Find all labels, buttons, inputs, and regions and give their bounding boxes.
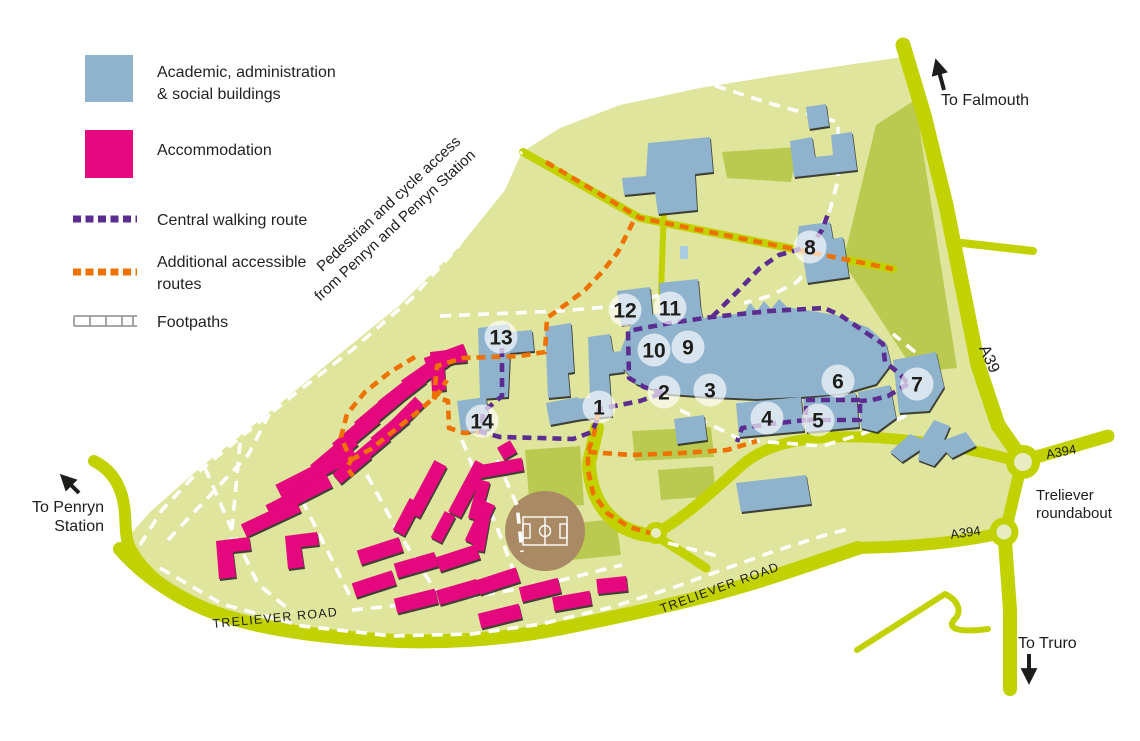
label-to-truro: To Truro [1018,635,1077,652]
pond [680,246,688,259]
map-marker-label-3: 3 [704,380,716,403]
map-marker-label-14: 14 [470,411,494,434]
legend-academic-swatch [85,55,133,102]
legend-accommodation-swatch [85,130,133,178]
campus-mini-roundabout [648,525,664,541]
to-falmouth-arrow-icon [937,64,944,90]
to-penryn-arrow-icon [64,478,79,493]
svg-text:Pedestrian and cycle access: Pedestrian and cycle access [313,133,464,275]
map-marker-label-5: 5 [812,410,824,433]
legend-central-route-label: Central walking route [157,212,307,229]
label-treliever-roundabout-1: Treliever [1036,487,1094,504]
south-roundabout [993,521,1015,543]
map-marker-label-6: 6 [832,371,844,394]
legend-academic-label-2: & social buildings [157,86,281,103]
map-marker-label-1: 1 [593,397,605,420]
map-marker-label-9: 9 [682,337,694,360]
map-marker-label-2: 2 [658,382,670,405]
legend-accommodation-label: Accommodation [157,142,272,159]
label-to-falmouth: To Falmouth [941,92,1029,109]
legend-accessible-route-label-1: Additional accessible [157,254,307,271]
legend-accessible-route-label-2: routes [157,276,201,293]
treliever-roundabout [1010,449,1036,475]
map-marker-label-7: 7 [911,374,923,397]
campus-map-svg: 1234567891011121314 To Falmouth A39 A394… [0,0,1140,741]
label-treliever-roundabout-2: roundabout [1036,505,1113,522]
map-marker-label-12: 12 [613,300,636,323]
road-to-truro [1005,541,1010,689]
legend: Academic, administration & social buildi… [73,55,336,331]
legend-footpath-swatch [74,316,137,326]
map-marker-label-13: 13 [489,327,512,350]
legend-footpath-label: Footpaths [157,314,228,331]
legend-academic-label-1: Academic, administration [157,64,336,81]
label-a394-east: A394 [1045,441,1078,462]
map-marker-label-4: 4 [761,408,773,431]
label-to-penryn-1: To Penryn [32,499,104,516]
map-marker-label-8: 8 [804,237,816,260]
campus-map-page: 1234567891011121314 To Falmouth A39 A394… [0,0,1140,741]
label-to-penryn-2: Station [54,518,104,535]
map-marker-label-10: 10 [642,340,665,363]
map-marker-label-11: 11 [659,298,682,321]
